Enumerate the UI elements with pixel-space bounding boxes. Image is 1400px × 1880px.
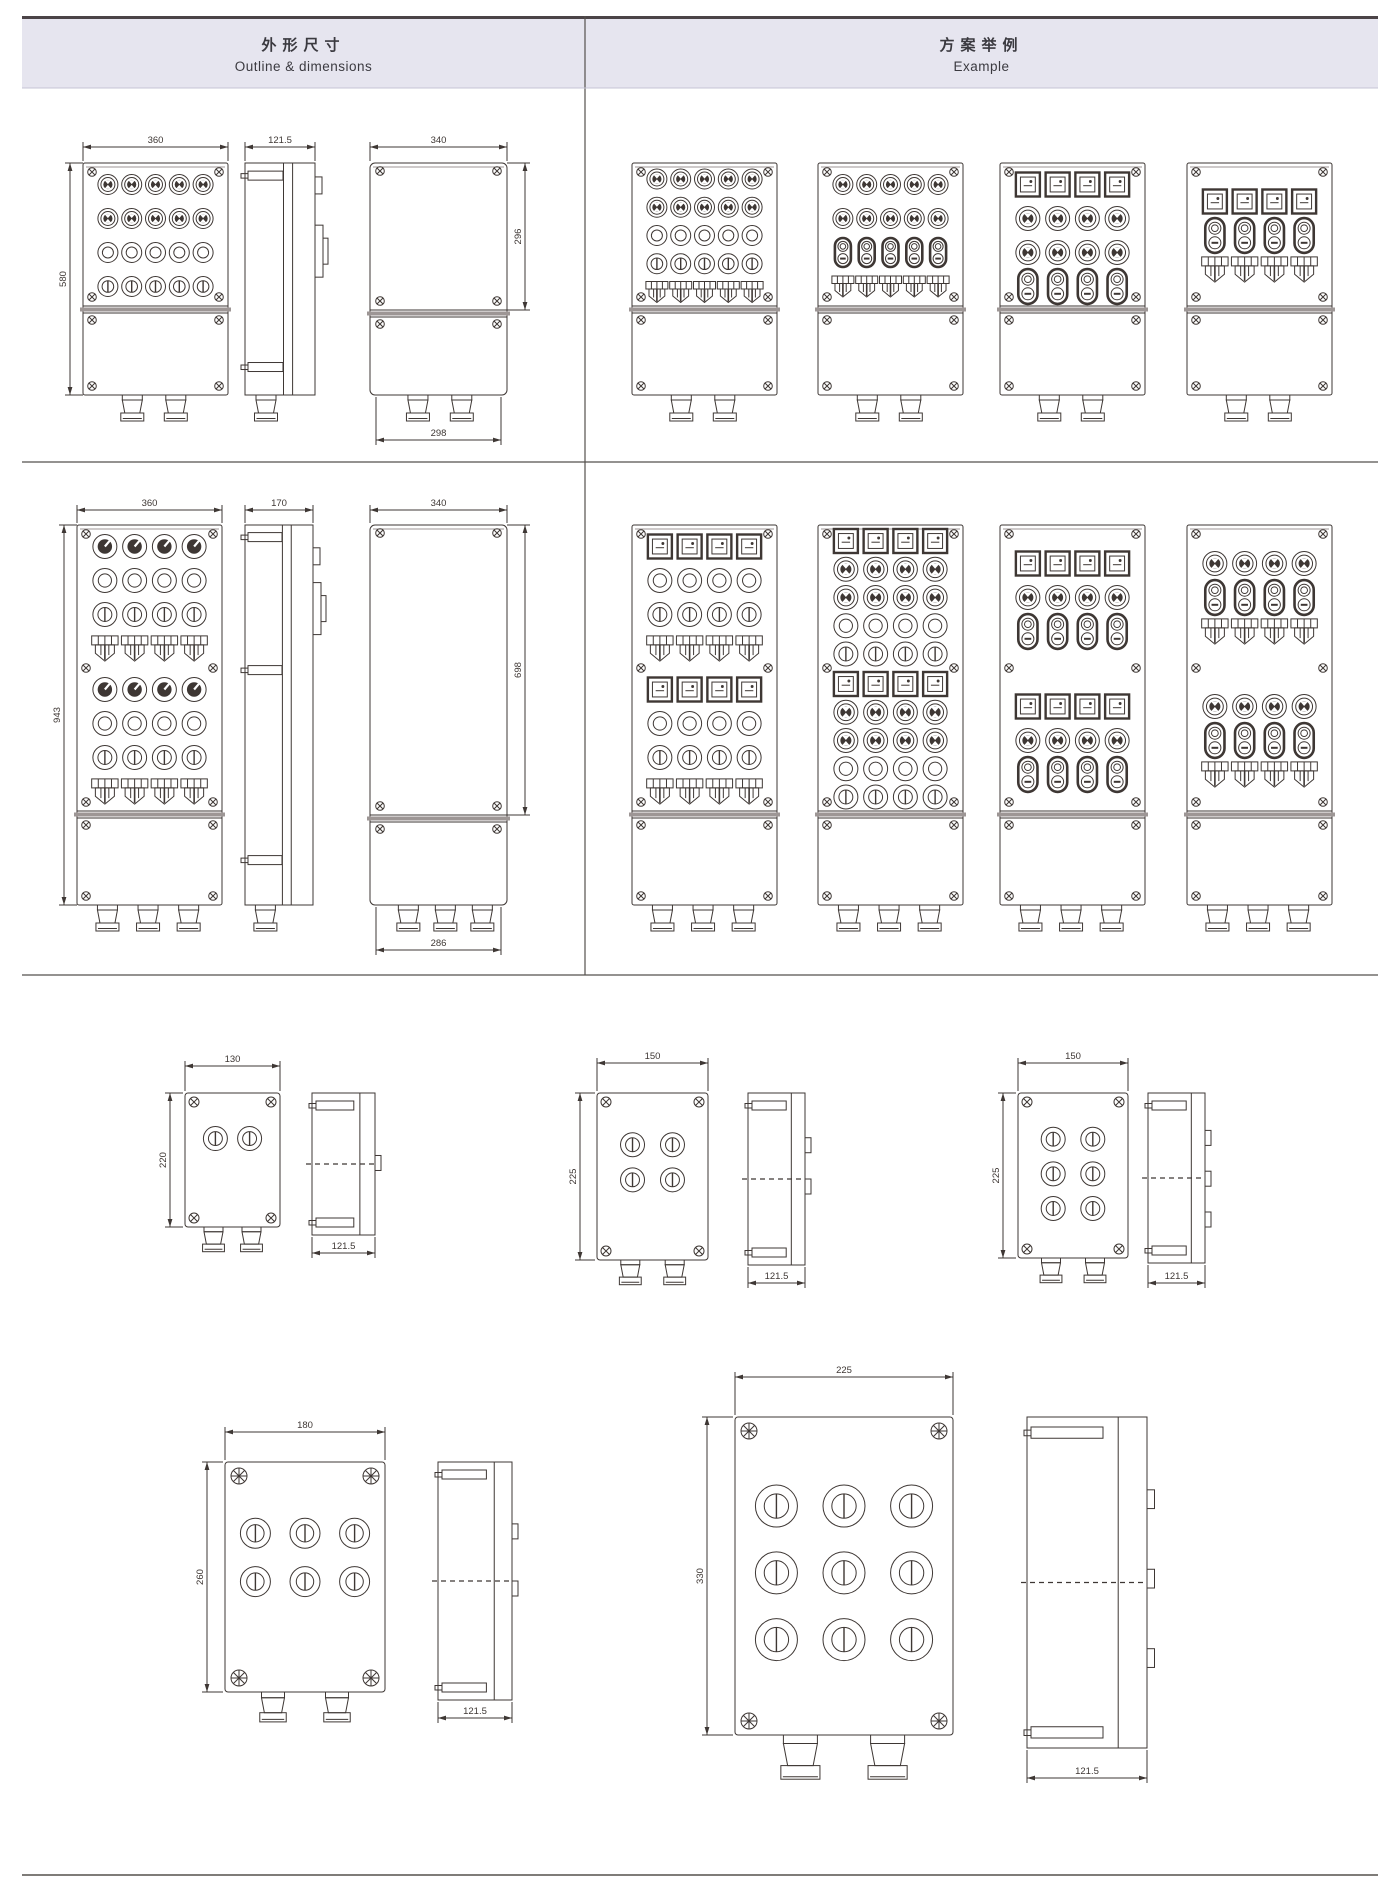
svg-text:698: 698 [513,662,524,678]
small-box-5-side-view [1021,1417,1155,1748]
svg-text:180: 180 [297,1420,313,1431]
row1-example-3 [997,163,1148,421]
svg-text:130: 130 [225,1054,241,1065]
row2-example-1 [629,525,780,931]
row1-front-view [80,163,231,421]
row1-example-4 [1184,163,1335,421]
small-box-5-front-view [735,1417,953,1779]
small-box-1-side-view [306,1093,381,1235]
row2-outline-views: 360943170340698286 [52,498,530,955]
row2-example-2 [815,525,966,931]
svg-text:943: 943 [52,707,63,723]
small-box-4-front-view [225,1462,385,1722]
row1-side-view [241,163,328,421]
small-box-3-side-view [1142,1093,1211,1263]
svg-text:150: 150 [645,1051,661,1062]
small-box-3: 150225121.5 [991,1051,1211,1288]
row2-example-4 [1184,525,1335,931]
svg-text:121.5: 121.5 [463,1706,487,1717]
svg-text:150: 150 [1065,1051,1081,1062]
row1-examples [629,163,1335,421]
svg-text:121.5: 121.5 [268,135,292,146]
svg-text:298: 298 [431,428,447,439]
technical-drawings: 360580121.534029629836094317034069828613… [0,0,1400,1880]
small-box-4: 180260121.5 [195,1420,518,1723]
svg-text:225: 225 [836,1365,852,1376]
svg-text:121.5: 121.5 [765,1271,789,1282]
svg-text:260: 260 [195,1569,206,1585]
svg-text:121.5: 121.5 [1165,1271,1189,1282]
svg-text:580: 580 [58,271,69,287]
small-box-4-side-view [432,1462,518,1700]
svg-text:225: 225 [991,1168,1002,1184]
small-box-3-front-view [1018,1093,1128,1283]
small-box-1-front-view [185,1093,280,1252]
small-box-2: 150225121.5 [568,1051,811,1288]
row1-rear-view [367,163,510,421]
svg-text:340: 340 [431,135,447,146]
row2-side-view [241,525,326,931]
row2-examples [629,525,1335,931]
svg-text:296: 296 [513,229,524,245]
svg-text:360: 360 [142,498,158,509]
svg-text:121.5: 121.5 [1075,1766,1099,1777]
svg-text:220: 220 [158,1152,169,1168]
row2-front-view [74,525,225,931]
svg-text:121.5: 121.5 [332,1241,356,1252]
small-box-1: 130220121.5 [158,1054,381,1258]
row1-example-1 [629,163,780,421]
row2-example-3 [997,525,1148,931]
row2-rear-view [367,525,510,931]
small-box-2-front-view [597,1093,708,1285]
svg-text:330: 330 [695,1568,706,1584]
small-box-2-side-view [742,1093,811,1265]
svg-text:360: 360 [148,135,164,146]
small-box-5: 225330121.5 [695,1365,1155,1783]
svg-text:340: 340 [431,498,447,509]
row1-example-2 [815,163,966,421]
catalog-page: 外形尺寸 Outline & dimensions 方案举例 Example 3… [0,0,1400,1880]
svg-text:170: 170 [271,498,287,509]
svg-text:225: 225 [568,1169,579,1185]
svg-text:286: 286 [431,938,447,949]
row1-outline-views: 360580121.5340296298 [58,135,530,445]
